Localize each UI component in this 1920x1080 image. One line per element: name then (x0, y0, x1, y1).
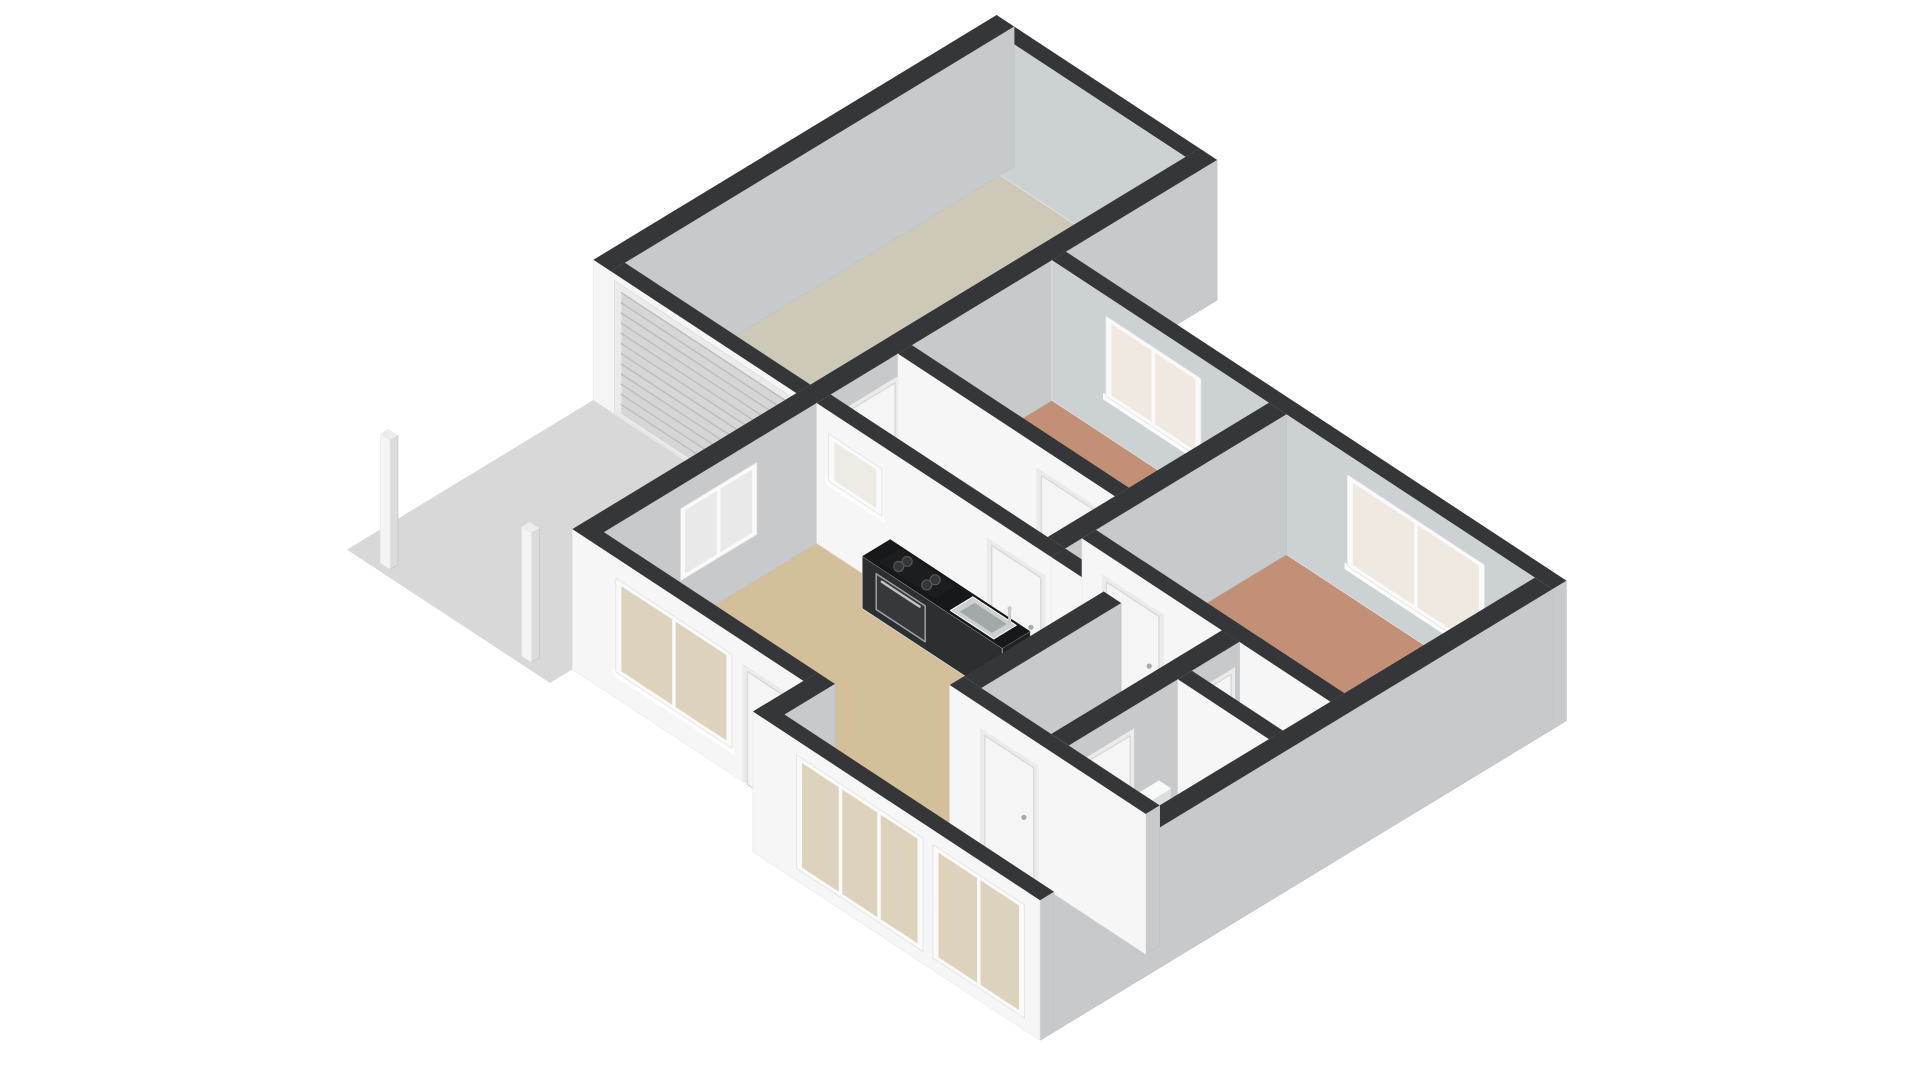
wall-hall-south-east-face (1146, 805, 1160, 954)
floorplan-3d-view (0, 0, 1920, 1080)
carport-post-1-east-face (532, 528, 540, 662)
door-handle (1147, 664, 1152, 669)
carport-post-2-south-face (380, 434, 390, 570)
wall-front-main-east-face (1040, 892, 1054, 1041)
wall-north-east-face (1552, 581, 1566, 730)
door-handle (1021, 815, 1026, 820)
kitchen-faucet-tip (1007, 606, 1011, 610)
cooktop-burner (902, 556, 912, 566)
door-handle (1028, 625, 1033, 630)
floorplan-svg (0, 0, 1920, 1080)
carport-post-2-east-face (390, 435, 398, 569)
cooktop-burner (930, 575, 940, 585)
wall-garage-west-south-face (593, 260, 611, 412)
carport-post-1-south-face (522, 527, 532, 663)
